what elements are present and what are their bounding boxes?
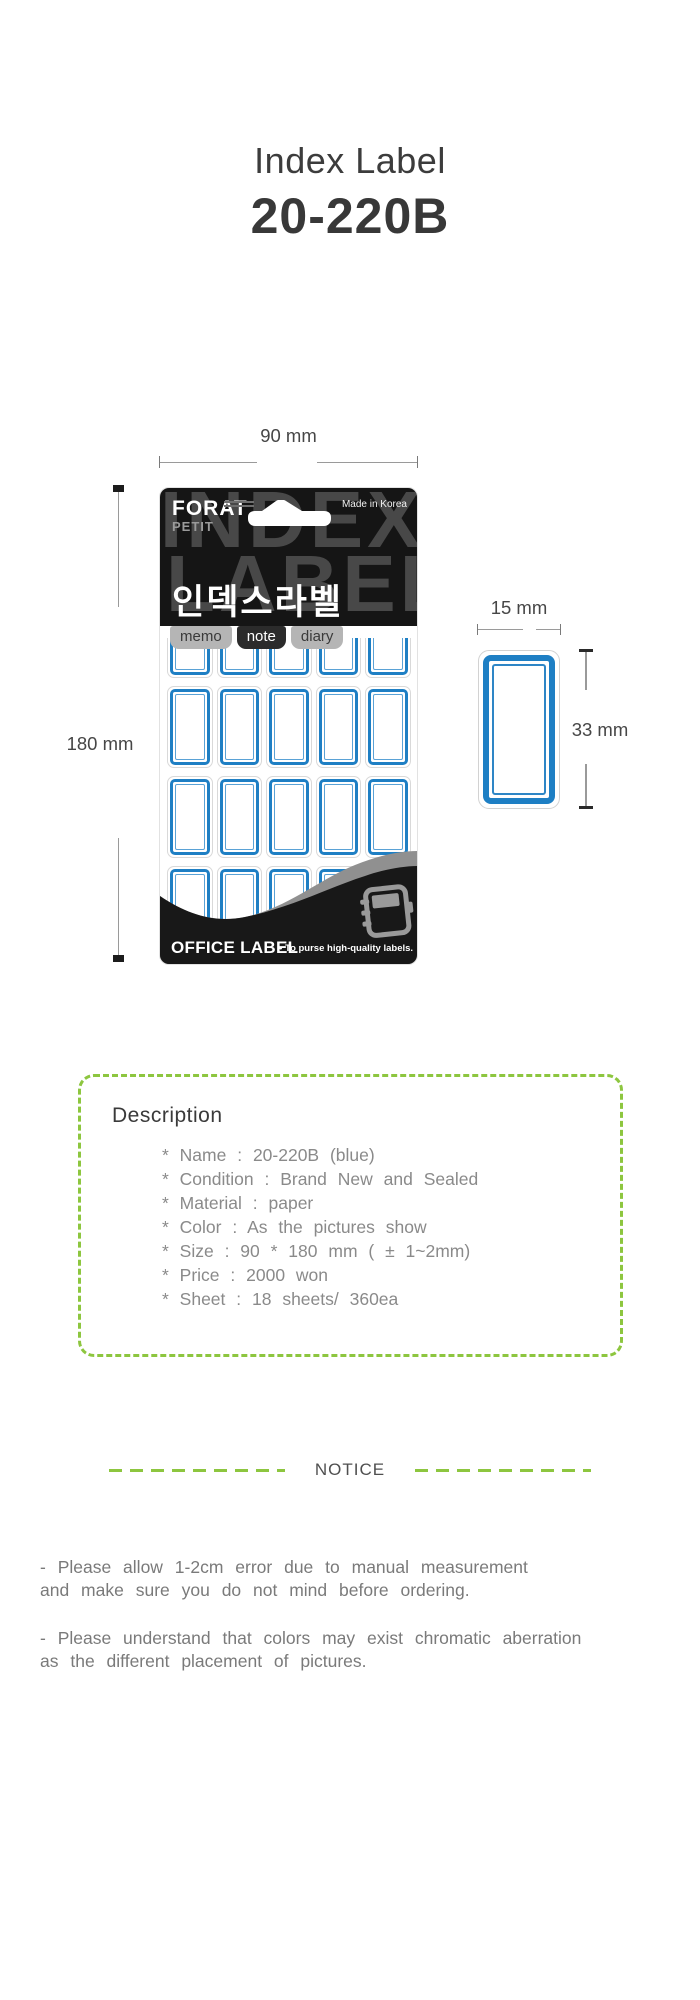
title-block: Index Label 20-220B [0, 140, 700, 245]
note-paragraph-1: - Please allow 1-2cm error due to manual… [40, 1556, 675, 1602]
index-tabs: memo note diary [170, 626, 343, 649]
note-paragraph-2: - Please understand that colors may exis… [40, 1627, 675, 1673]
blank-label [365, 686, 411, 768]
description-item-size: * Size : 90 * 180 mm ( ± 1~2mm) [162, 1239, 478, 1263]
blank-label [167, 686, 213, 768]
korean-product-name: 인덱스라벨 [172, 574, 343, 625]
blank-label [217, 776, 263, 858]
description-item-name: * Name : 20-220B (blue) [162, 1143, 478, 1167]
description-list: * Name : 20-220B (blue) * Condition : Br… [162, 1143, 478, 1311]
width-dimension-label: 90 mm [159, 425, 418, 447]
package-header: INDEX LABEL FORAT PETIT Made in Korea 인덱… [160, 488, 417, 626]
made-in-text: Made in Korea [342, 499, 407, 510]
single-label-width-label: 15 mm [477, 597, 561, 619]
note-line: and make sure you do not mind before ord… [40, 1579, 675, 1602]
tab-diary: diary [291, 626, 344, 649]
blank-label [167, 776, 213, 858]
height-dimension-cap-bottom [113, 955, 124, 962]
label-grid-row [167, 686, 411, 768]
label-grid-row [167, 776, 411, 858]
blank-label [316, 686, 362, 768]
blank-label [365, 776, 411, 858]
product-model: 20-220B [0, 187, 700, 245]
brand-subname: PETIT [172, 520, 248, 533]
note-line: - Please allow 1-2cm error due to manual… [40, 1556, 675, 1579]
blank-label [217, 686, 263, 768]
description-heading: Description [112, 1104, 223, 1128]
description-item-color: * Color : As the pictures show [162, 1215, 478, 1239]
description-item-sheet: * Sheet : 18 sheets/ 360ea [162, 1287, 478, 1311]
notice-dash-left [109, 1469, 285, 1472]
single-label-width-line [477, 624, 561, 635]
single-label-diagram [478, 650, 560, 809]
single-label-height-label: 33 mm [565, 719, 635, 741]
blank-label [316, 776, 362, 858]
height-dimension-cap-top [113, 485, 124, 492]
product-package-image: INDEX LABEL FORAT PETIT Made in Korea 인덱… [159, 487, 418, 965]
description-box: Description * Name : 20-220B (blue) * Co… [78, 1074, 623, 1357]
description-item-price: * Price : 2000 won [162, 1263, 478, 1287]
notice-dash-right [415, 1469, 591, 1472]
brand-logo: FORAT PETIT [172, 498, 248, 533]
note-line: as the different placement of pictures. [40, 1650, 675, 1673]
note-line: - Please understand that colors may exis… [40, 1627, 675, 1650]
notice-notes: - Please allow 1-2cm error due to manual… [40, 1556, 675, 1698]
product-title: Index Label [0, 140, 700, 182]
tab-note: note [237, 626, 286, 649]
height-dimension-label: 180 mm [50, 733, 150, 755]
height-dimension-line-bottom [118, 838, 119, 955]
hanger-hole-icon [248, 500, 331, 527]
height-dimension-line-top [118, 492, 119, 607]
description-item-condition: * Condition : Brand New and Sealed [162, 1167, 478, 1191]
footer-tagline: • To purse high-quality labels. [279, 943, 413, 954]
width-dimension-line [159, 456, 418, 468]
blank-label [266, 686, 312, 768]
tab-memo: memo [170, 626, 232, 649]
blank-label [365, 638, 411, 678]
notice-divider: NOTICE [0, 1460, 700, 1480]
notice-label: NOTICE [315, 1460, 385, 1480]
blank-label [266, 776, 312, 858]
description-item-material: * Material : paper [162, 1191, 478, 1215]
